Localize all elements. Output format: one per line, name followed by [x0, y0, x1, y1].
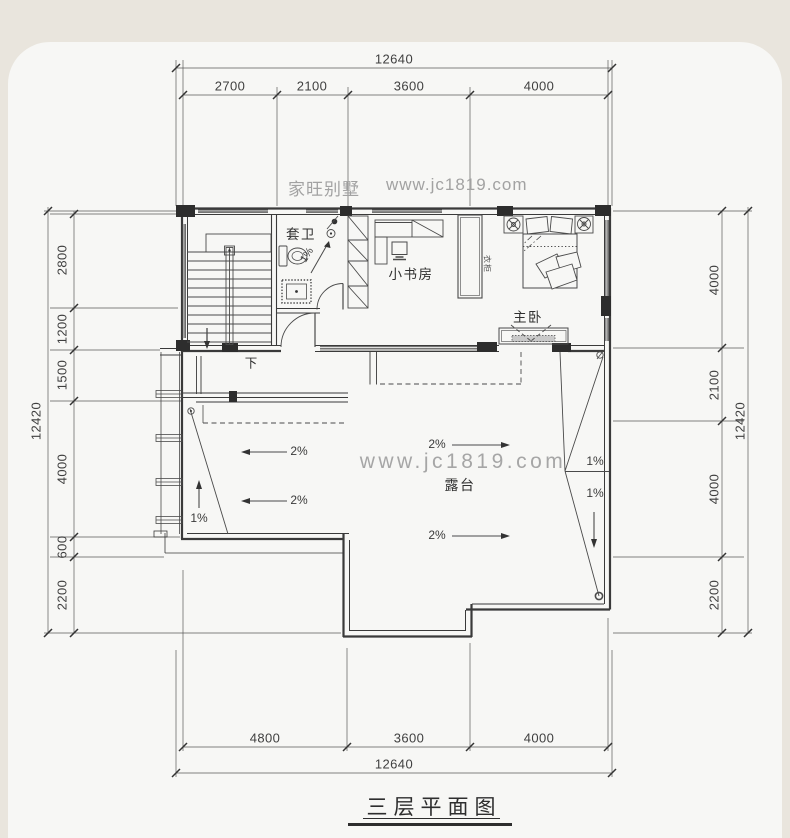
closet-shelving: [348, 216, 368, 308]
wardrobe-partition: [458, 215, 482, 298]
room-label-bathroom: 套卫: [286, 223, 316, 243]
doors: [281, 284, 343, 348]
bedroom-furniture: [504, 216, 593, 289]
dim-left-seg-6: 2200: [55, 580, 70, 611]
dim-bottom-seg-1: 4800: [250, 731, 281, 746]
computer-monitor-icon: [392, 242, 407, 255]
dim-left-seg-5: 600: [55, 536, 70, 559]
study-furniture: [375, 220, 443, 264]
dim-bottom-seg-3: 4000: [524, 731, 555, 746]
dim-top-seg-1: 2700: [215, 79, 246, 94]
floorplan-page: 家旺别墅 www.jc1819.com www.jc1819.com 12640…: [0, 0, 790, 838]
stair-down-label: 下: [245, 353, 258, 372]
dim-left-seg-2: 1200: [55, 314, 70, 345]
dim-top-seg-2: 2100: [297, 79, 328, 94]
room-label-terrace: 露台: [445, 475, 476, 495]
dim-bottom-total: 12640: [375, 757, 413, 772]
dimension-ticks: [44, 64, 752, 777]
drawing-title: 三层平面图: [367, 791, 502, 821]
room-label-study: 小书房: [389, 263, 434, 283]
room-label-master-bedroom: 主卧: [513, 306, 543, 326]
slope-2pct-center-upper: 2%: [428, 437, 445, 451]
slope-1pct-left: 1%: [190, 511, 207, 525]
dim-left-seg-1: 2800: [55, 245, 70, 276]
dim-left-seg-4: 4000: [55, 454, 70, 485]
dim-right-seg-2: 2100: [707, 370, 722, 401]
window-seat: [499, 325, 568, 344]
pillow: [526, 217, 549, 235]
slope-2pct-left-upper: 2%: [290, 444, 307, 458]
watermark-brand: 家旺别墅: [288, 175, 360, 200]
watermark-center: www.jc1819.com: [360, 450, 567, 474]
dimension-lines: [44, 60, 752, 777]
blanket: [536, 252, 581, 289]
bathroom-door-swing: [317, 284, 343, 310]
pillow: [550, 217, 573, 235]
dim-top-seg-4: 4000: [524, 79, 555, 94]
slope-2pct-left-lower: 2%: [290, 493, 307, 507]
left-rail: [156, 352, 182, 534]
dim-bottom-seg-2: 3600: [394, 731, 425, 746]
dim-left-seg-3: 1500: [55, 360, 70, 391]
terrace-door-swing: [281, 313, 315, 347]
watermark-top: 家旺别墅 www.jc1819.com: [288, 175, 528, 200]
dim-right-seg-4: 2200: [707, 580, 722, 611]
dim-right-seg-1: 4000: [707, 265, 722, 296]
dim-right-seg-3: 4000: [707, 474, 722, 505]
column-blocks: [176, 205, 611, 402]
dim-top-total: 12640: [375, 52, 413, 67]
slope-1pct-right-upper: 1%: [586, 454, 603, 468]
dim-left-total: 12420: [29, 402, 44, 440]
slope-1pct-right-lower: 1%: [586, 486, 603, 500]
wardrobe-label: 衣柜: [482, 255, 493, 273]
slope-2pct-center-lower: 2%: [428, 528, 445, 542]
toilet-tank: [279, 246, 287, 266]
floorplan-drawing: [0, 0, 790, 838]
staircase: [187, 234, 271, 349]
terrace-annotations: [188, 350, 609, 600]
watermark-site: www.jc1819.com: [386, 175, 528, 200]
dim-right-total: 12420: [733, 402, 748, 440]
dim-top-seg-3: 3600: [394, 79, 425, 94]
slope-arrow: [324, 241, 331, 248]
